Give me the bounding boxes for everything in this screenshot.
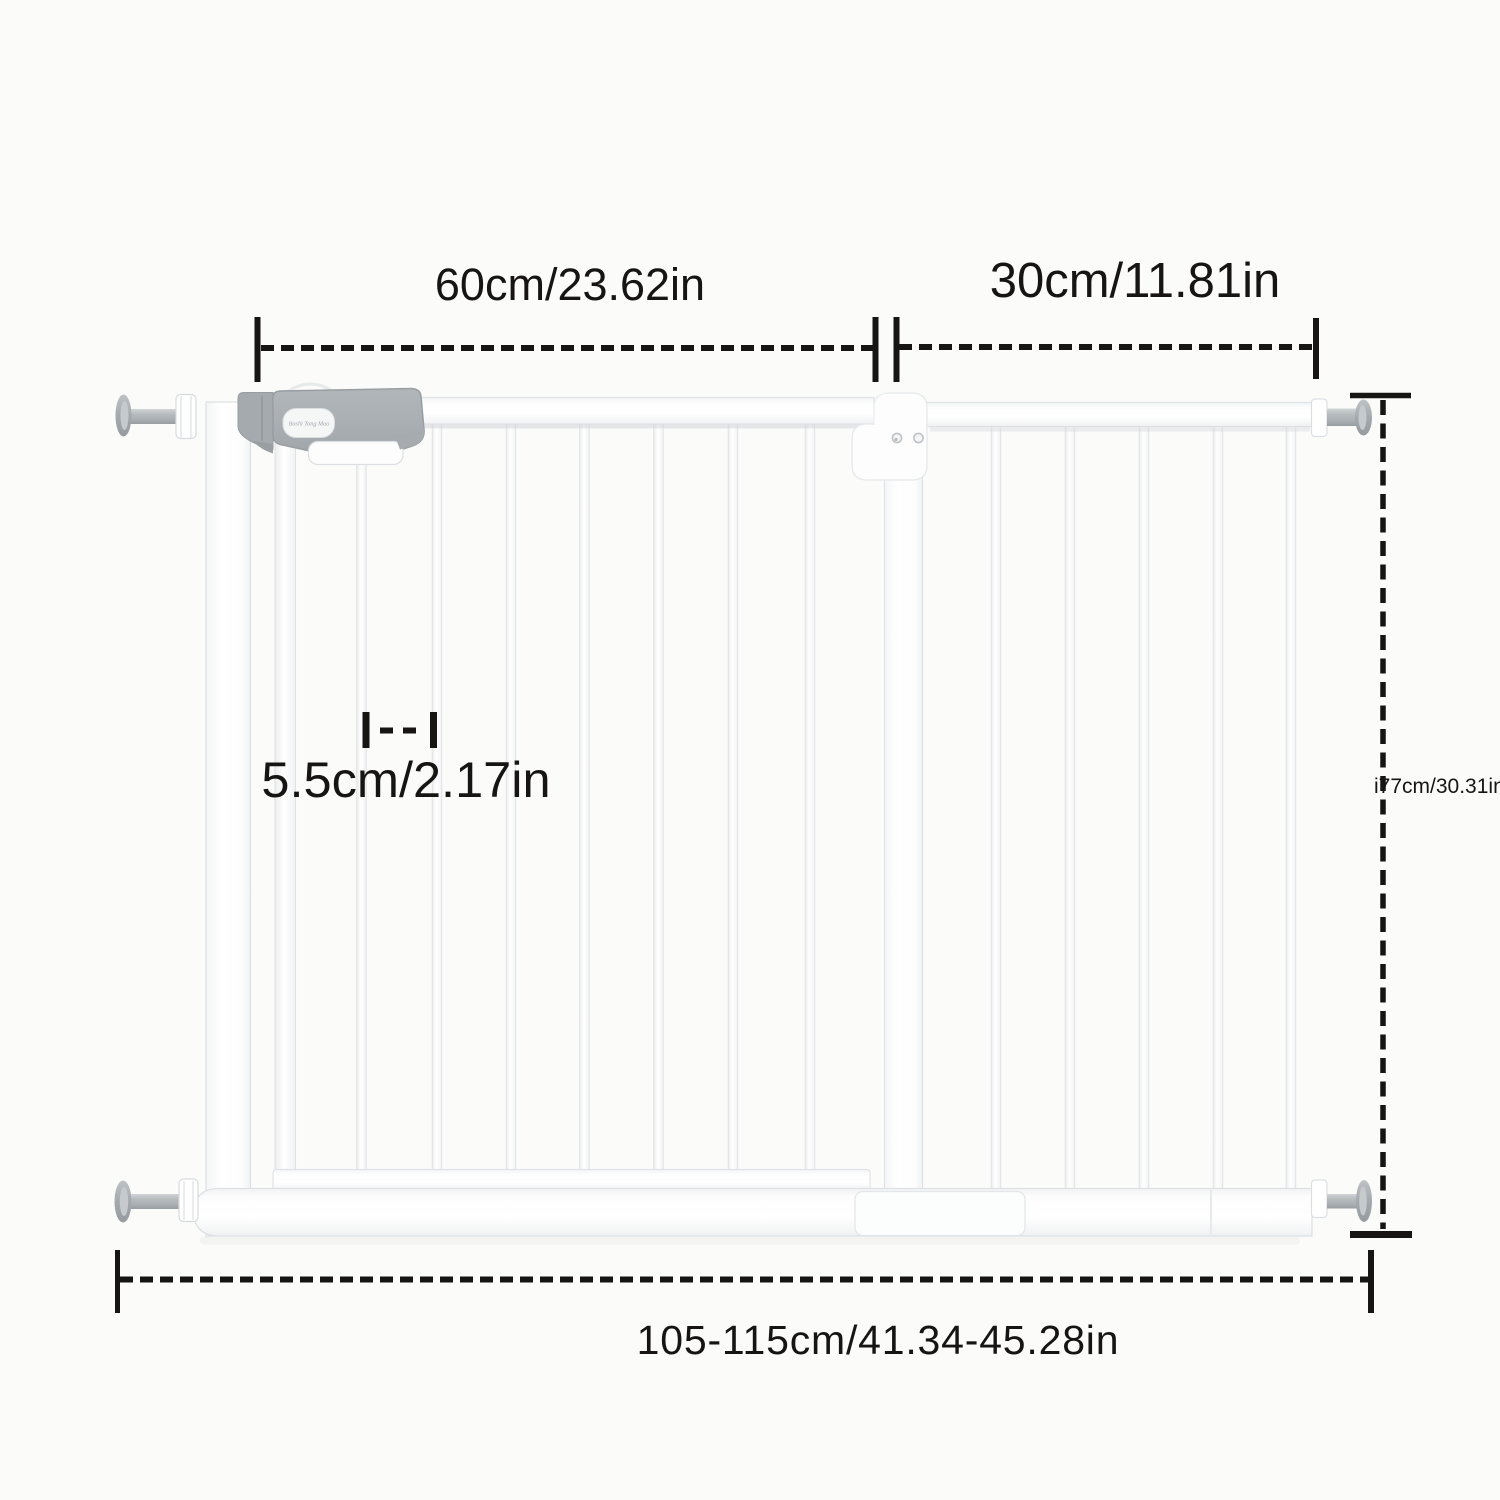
svg-text:60cm/23.62in: 60cm/23.62in: [435, 259, 705, 310]
svg-text:30cm/11.81in: 30cm/11.81in: [990, 254, 1281, 308]
svg-text:i77cm/30.31in: i77cm/30.31in: [1374, 775, 1500, 798]
svg-text:5.5cm/2.17in: 5.5cm/2.17in: [261, 751, 550, 808]
svg-text:105-115cm/41.34-45.28in: 105-115cm/41.34-45.28in: [637, 1317, 1120, 1363]
svg-text:Boshi Tong Mao: Boshi Tong Mao: [289, 421, 330, 428]
